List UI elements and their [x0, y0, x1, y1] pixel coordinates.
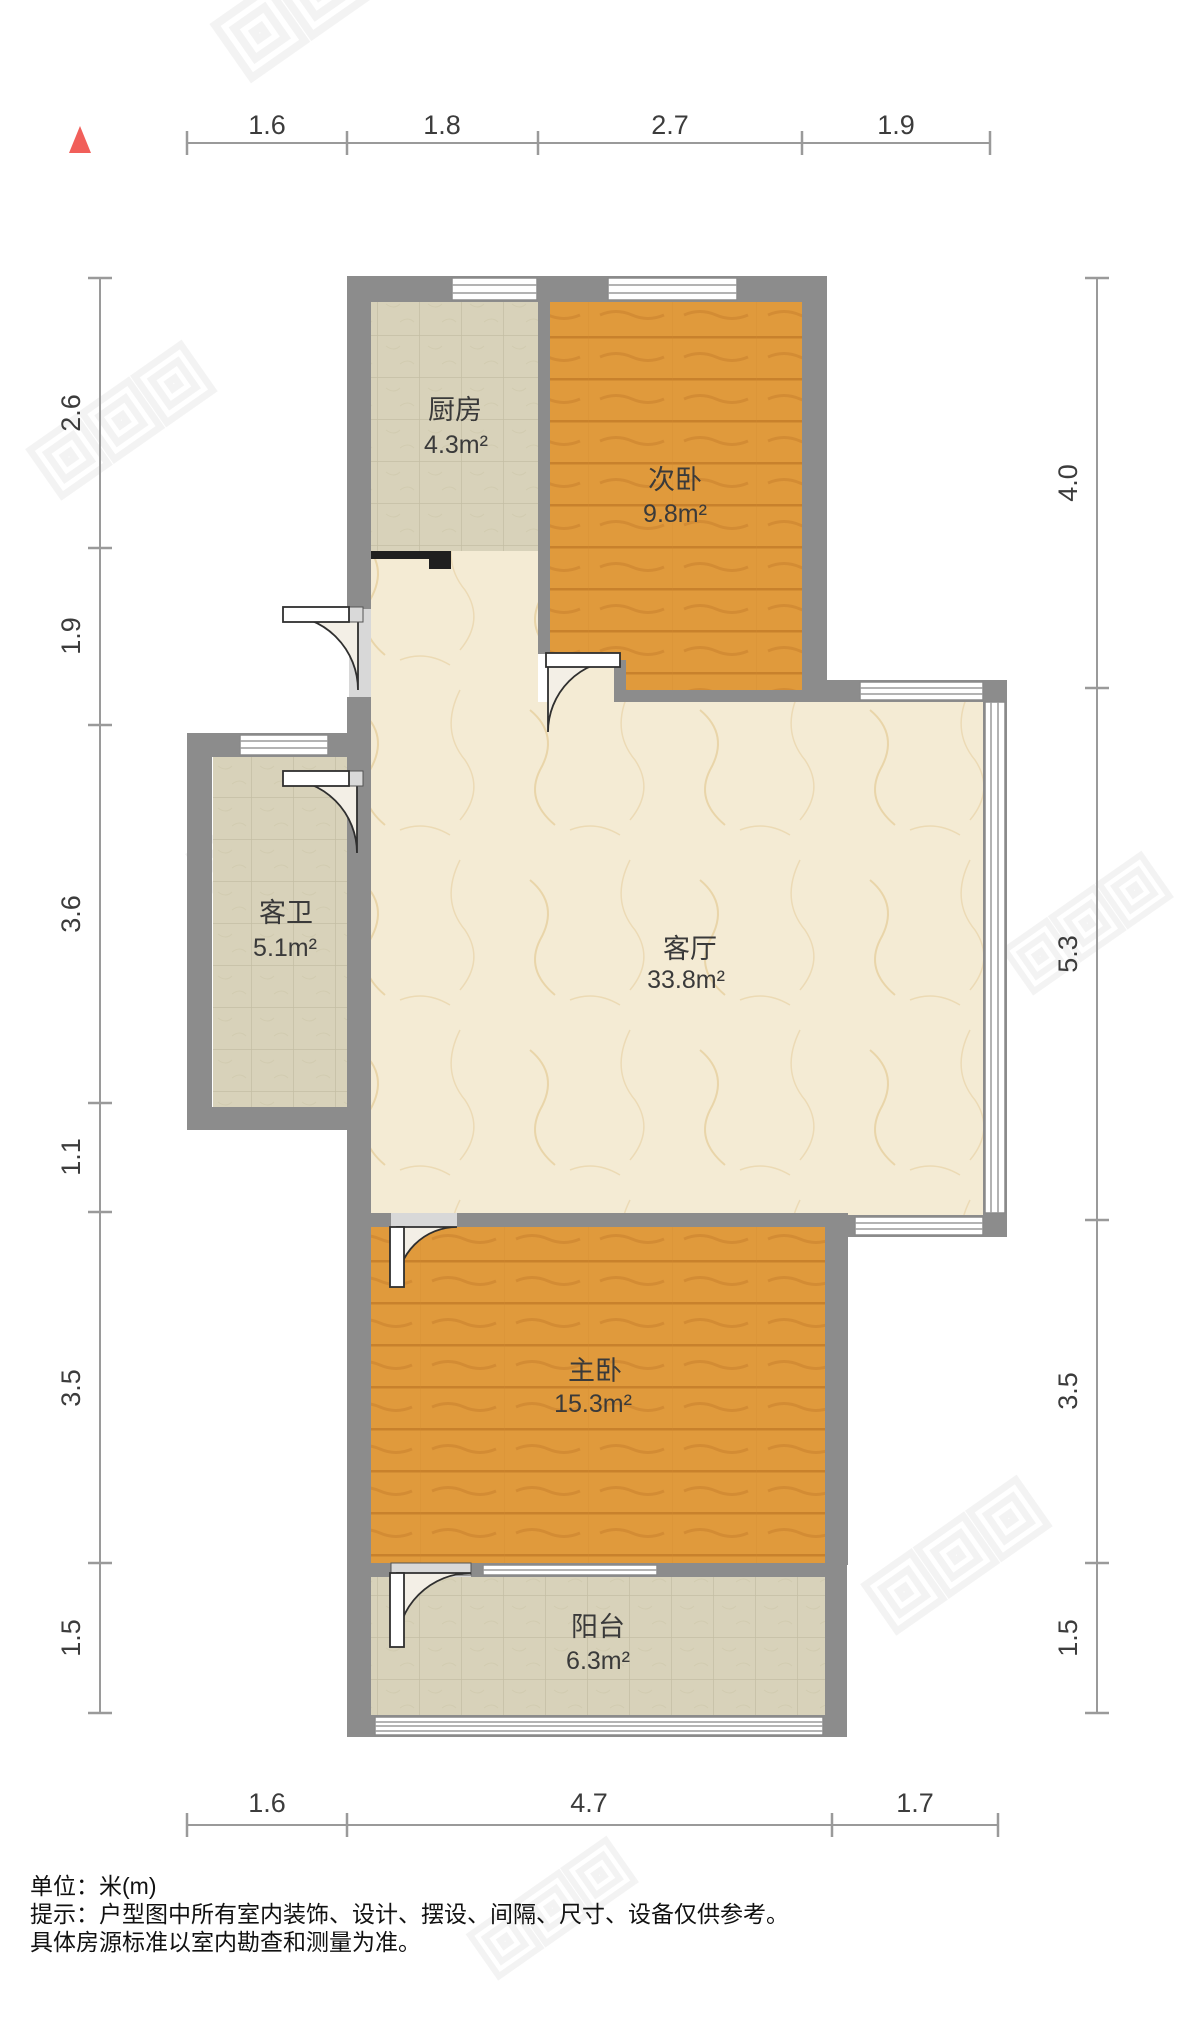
- living-room-floor: [371, 551, 538, 1213]
- room-label-kitchen: 厨房: [428, 395, 482, 425]
- kitchen-opening-wall: [429, 551, 451, 569]
- living-room-bay-window: [985, 702, 1005, 1213]
- room-area-kitchen: 4.3m²: [424, 431, 488, 459]
- dim-top-1: 1.6: [248, 110, 286, 140]
- dim-left-6: 1.5: [56, 1619, 86, 1657]
- dim-bottom-1: 1.6: [248, 1788, 286, 1818]
- wall-segment: [614, 690, 827, 702]
- dim-right-3: 3.5: [1053, 1372, 1083, 1410]
- wall-segment: [187, 757, 212, 1130]
- wall-segment: [347, 1130, 371, 1715]
- wall-segment: [347, 276, 827, 302]
- wall-segment: [825, 1565, 847, 1737]
- dim-top-2: 1.8: [423, 110, 461, 140]
- kitchen-floor: [371, 302, 538, 551]
- dim-bottom-3: 1.7: [896, 1788, 934, 1818]
- dimension-bottom: 1.6 4.7 1.7: [187, 1788, 998, 1837]
- master-bedroom-doorway: [391, 1213, 457, 1227]
- room-label-second-bedroom: 次卧: [648, 465, 702, 495]
- north-triangle-icon: [69, 126, 91, 153]
- floor-plan-canvas: 厨房 4.3m² 次卧 9.8m² 客卫 5.1m² 客厅 33.8m² 主卧 …: [0, 0, 1196, 2017]
- room-area-guest-bathroom: 5.1m²: [253, 934, 317, 962]
- dim-left-5: 3.5: [56, 1369, 86, 1407]
- dimension-top: 1.6 1.8 2.7 1.9: [187, 110, 990, 155]
- guest-bathroom-window: [240, 735, 328, 755]
- dim-top-4: 1.9: [877, 110, 915, 140]
- dim-top-3: 2.7: [651, 110, 689, 140]
- guest-bathroom-floor: [213, 757, 347, 1107]
- wall-segment: [187, 1107, 371, 1130]
- room-label-guest-bathroom: 客卫: [259, 898, 313, 928]
- second-bedroom-floor: [550, 302, 802, 690]
- dim-right-2: 5.3: [1053, 935, 1083, 973]
- balcony-floor: [371, 1577, 825, 1715]
- master-bedroom-balcony-window: [483, 1565, 657, 1575]
- wall-segment: [825, 1213, 848, 1565]
- kitchen-window: [452, 278, 537, 300]
- dim-left-1: 2.6: [56, 394, 86, 432]
- room-label-balcony: 阳台: [571, 1612, 625, 1642]
- disclaimer-note2: 具体房源标准以室内勘查和测量为准。: [30, 1928, 1170, 1956]
- room-area-balcony: 6.3m²: [566, 1647, 630, 1675]
- wall-segment: [347, 302, 371, 609]
- footer-notes: 单位：米(m) 提示：户型图中所有室内装饰、设计、摆设、间隔、尺寸、设备仅供参考…: [30, 1872, 1170, 1956]
- wall-segment: [538, 302, 550, 654]
- living-room-bottom-window: [855, 1217, 983, 1235]
- dim-right-4: 1.5: [1053, 1619, 1083, 1657]
- living-room-floor: [827, 702, 983, 1215]
- dim-bottom-2: 4.7: [570, 1788, 608, 1818]
- room-area-master-bedroom: 15.3m²: [554, 1390, 632, 1418]
- dim-left-4: 1.1: [56, 1138, 86, 1176]
- room-label-living-room: 客厅: [663, 934, 717, 964]
- dim-left-3: 3.6: [56, 895, 86, 933]
- wall-segment: [802, 302, 827, 702]
- dim-left-2: 1.9: [56, 617, 86, 655]
- kitchen-opening-wall: [371, 551, 431, 559]
- unit-note: 单位：米(m): [30, 1872, 1170, 1900]
- floor-plan-page: 厨房 4.3m² 次卧 9.8m² 客卫 5.1m² 客厅 33.8m² 主卧 …: [0, 0, 1196, 2017]
- floors: [213, 302, 983, 1715]
- balcony-window: [375, 1717, 823, 1735]
- dimension-right: 4.0 5.3 3.5 1.5: [1053, 278, 1109, 1713]
- living-room-top-window: [860, 682, 983, 700]
- room-area-living-room: 33.8m²: [647, 966, 725, 994]
- room-area-second-bedroom: 9.8m²: [643, 500, 707, 528]
- dim-right-1: 4.0: [1053, 464, 1083, 502]
- room-label-master-bedroom: 主卧: [568, 1356, 622, 1386]
- second-bedroom-window: [608, 278, 737, 300]
- disclaimer-note: 提示：户型图中所有室内装饰、设计、摆设、间隔、尺寸、设备仅供参考。: [30, 1900, 1170, 1928]
